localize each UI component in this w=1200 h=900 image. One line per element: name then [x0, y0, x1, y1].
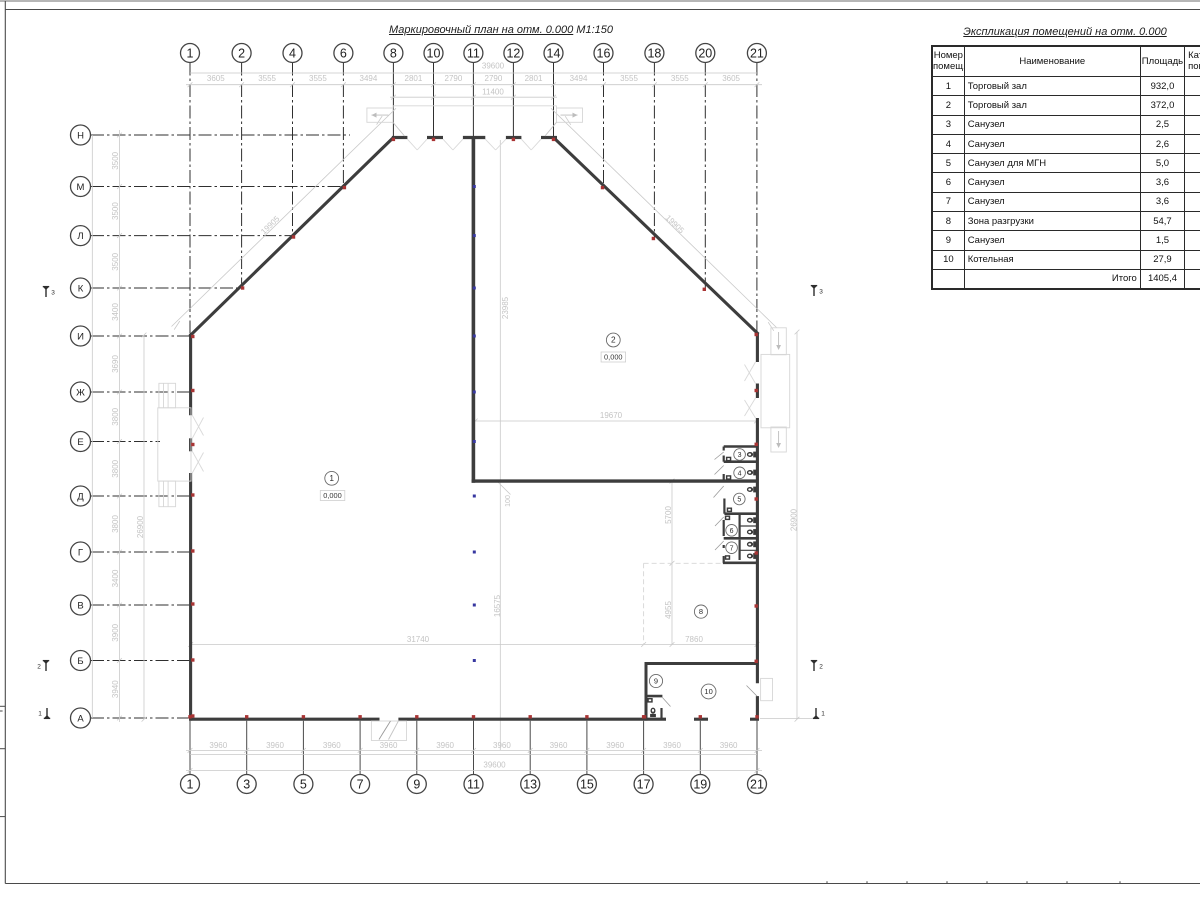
svg-text:Е: Е	[77, 437, 83, 448]
svg-text:26900: 26900	[790, 508, 799, 531]
svg-text:И: И	[77, 331, 84, 342]
svg-text:16575: 16575	[493, 594, 502, 617]
svg-text:15: 15	[580, 778, 594, 792]
svg-text:12: 12	[506, 47, 520, 61]
svg-text:9: 9	[654, 677, 658, 686]
svg-text:21: 21	[750, 778, 764, 792]
svg-text:2: 2	[611, 335, 616, 345]
svg-text:0,000: 0,000	[604, 353, 623, 362]
svg-text:1: 1	[821, 711, 825, 718]
svg-text:3960: 3960	[663, 741, 681, 750]
svg-text:2: 2	[819, 664, 823, 671]
svg-text:11: 11	[467, 47, 480, 61]
svg-text:19: 19	[693, 778, 707, 792]
svg-text:3960: 3960	[209, 741, 227, 750]
svg-text:3: 3	[243, 778, 250, 792]
svg-text:3555: 3555	[258, 74, 276, 83]
svg-text:3940: 3940	[111, 680, 120, 698]
svg-text:0,000: 0,000	[323, 491, 342, 500]
svg-text:19905: 19905	[664, 213, 687, 235]
svg-text:18: 18	[647, 47, 661, 61]
svg-text:Н: Н	[77, 130, 84, 141]
svg-text:20: 20	[698, 47, 712, 61]
svg-text:3960: 3960	[493, 741, 511, 750]
svg-text:39600: 39600	[482, 62, 505, 71]
svg-text:3494: 3494	[360, 74, 378, 83]
svg-text:7860: 7860	[685, 635, 703, 644]
svg-text:11400: 11400	[482, 88, 504, 97]
svg-text:26900: 26900	[136, 515, 145, 538]
svg-text:6: 6	[730, 528, 734, 535]
svg-text:3960: 3960	[323, 741, 341, 750]
svg-text:39600: 39600	[483, 761, 506, 770]
svg-text:3: 3	[819, 289, 823, 296]
svg-text:А: А	[77, 713, 84, 724]
svg-text:3800: 3800	[111, 515, 120, 533]
svg-text:3690: 3690	[111, 355, 120, 373]
svg-text:1: 1	[38, 711, 42, 718]
svg-text:7: 7	[730, 545, 734, 552]
svg-text:2: 2	[37, 664, 41, 671]
svg-text:Л: Л	[77, 231, 83, 242]
svg-text:2: 2	[238, 47, 245, 61]
svg-text:Д: Д	[77, 491, 84, 502]
svg-text:21: 21	[750, 47, 764, 61]
svg-text:3500: 3500	[111, 202, 120, 220]
svg-text:Г: Г	[78, 547, 83, 558]
svg-text:3: 3	[738, 452, 742, 459]
svg-text:16: 16	[597, 47, 611, 61]
svg-text:8: 8	[390, 47, 397, 61]
svg-text:3555: 3555	[671, 74, 689, 83]
svg-text:8: 8	[699, 607, 703, 616]
svg-text:3960: 3960	[606, 741, 624, 750]
svg-text:6: 6	[340, 47, 347, 61]
svg-text:3605: 3605	[722, 74, 740, 83]
svg-text:3800: 3800	[111, 407, 120, 425]
svg-text:2790: 2790	[485, 74, 503, 83]
svg-text:1: 1	[187, 47, 194, 61]
svg-text:3400: 3400	[111, 569, 120, 587]
svg-text:4955: 4955	[664, 601, 673, 619]
svg-text:14: 14	[547, 47, 561, 61]
svg-text:3800: 3800	[111, 459, 120, 477]
svg-text:3960: 3960	[380, 741, 398, 750]
svg-text:3: 3	[51, 290, 55, 297]
svg-text:3400: 3400	[111, 303, 120, 321]
svg-text:13: 13	[523, 778, 537, 792]
svg-text:19905: 19905	[259, 214, 282, 236]
svg-text:3605: 3605	[207, 74, 225, 83]
svg-text:7: 7	[357, 778, 364, 792]
svg-text:31740: 31740	[407, 635, 430, 644]
svg-text:3900: 3900	[111, 623, 120, 641]
svg-text:3494: 3494	[570, 74, 588, 83]
svg-text:3555: 3555	[620, 74, 638, 83]
svg-text:Ж: Ж	[76, 387, 85, 398]
svg-text:100: 100	[505, 495, 512, 507]
svg-text:5: 5	[737, 497, 741, 504]
svg-text:3960: 3960	[550, 741, 568, 750]
svg-text:3960: 3960	[436, 741, 454, 750]
svg-text:М: М	[77, 182, 85, 193]
svg-text:11: 11	[467, 778, 480, 792]
svg-text:3500: 3500	[111, 151, 120, 169]
svg-text:3960: 3960	[266, 741, 284, 750]
svg-text:17: 17	[637, 778, 651, 792]
svg-text:4: 4	[289, 47, 296, 61]
svg-text:2790: 2790	[445, 74, 463, 83]
svg-text:4: 4	[738, 470, 742, 477]
svg-text:2801: 2801	[405, 74, 423, 83]
svg-text:5: 5	[300, 778, 307, 792]
svg-text:3500: 3500	[111, 252, 120, 270]
svg-text:Б: Б	[77, 656, 83, 667]
svg-text:1: 1	[187, 778, 194, 792]
svg-text:К: К	[78, 283, 84, 294]
svg-text:9: 9	[413, 778, 420, 792]
svg-text:3555: 3555	[309, 74, 327, 83]
svg-text:В: В	[77, 600, 83, 611]
svg-text:5700: 5700	[664, 506, 673, 524]
svg-text:10: 10	[427, 47, 441, 61]
svg-text:23985: 23985	[501, 296, 510, 319]
svg-text:1: 1	[329, 473, 334, 483]
svg-text:10: 10	[704, 687, 712, 696]
svg-text:2801: 2801	[525, 74, 543, 83]
svg-text:19670: 19670	[600, 411, 623, 420]
svg-text:3960: 3960	[720, 741, 738, 750]
